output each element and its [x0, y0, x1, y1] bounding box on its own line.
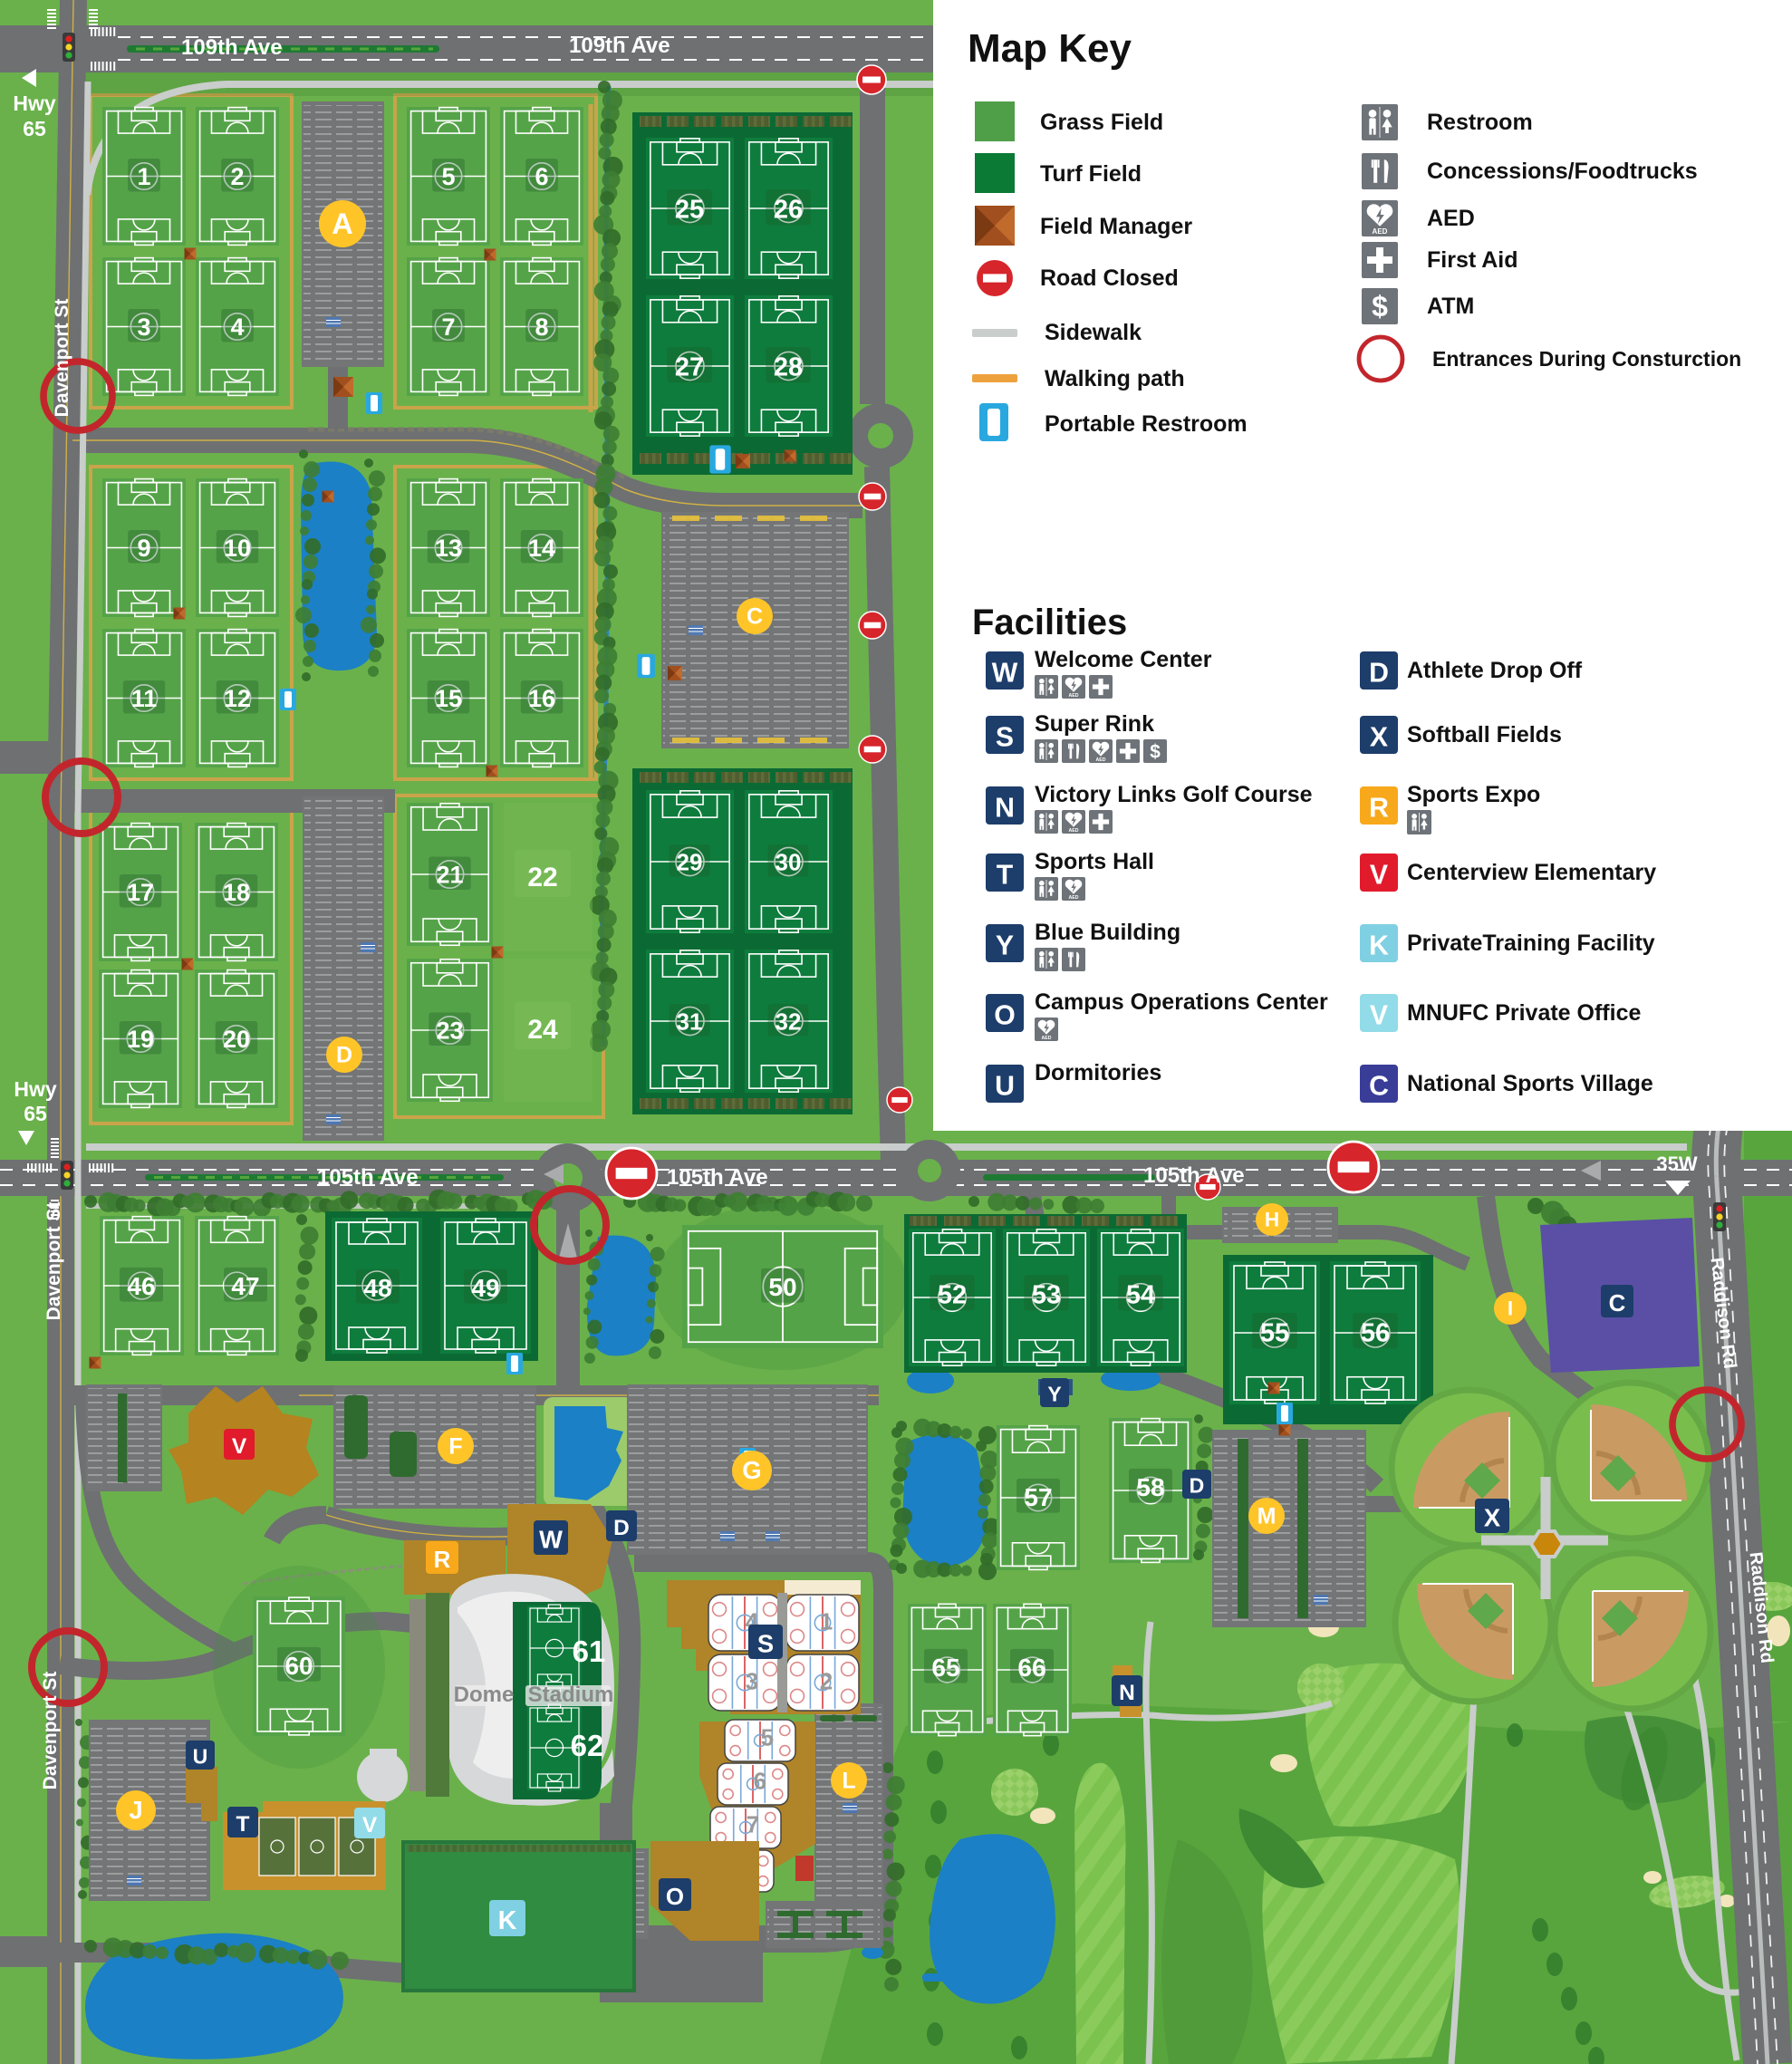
svg-text:F: F — [448, 1433, 462, 1459]
svg-text:D: D — [336, 1042, 352, 1067]
svg-text:Stadium: Stadium — [528, 1683, 614, 1707]
svg-text:Athlete Drop Off: Athlete Drop Off — [1407, 658, 1583, 683]
svg-text:Welcome Center: Welcome Center — [1035, 647, 1212, 672]
svg-text:17: 17 — [127, 879, 154, 906]
svg-text:AED: AED — [1069, 693, 1079, 699]
svg-text:105th Ave: 105th Ave — [317, 1165, 419, 1190]
svg-text:26: 26 — [774, 195, 803, 224]
svg-text:Blue Building: Blue Building — [1035, 920, 1180, 945]
svg-text:35W: 35W — [1656, 1153, 1697, 1175]
svg-text:22: 22 — [527, 863, 557, 892]
svg-text:Facilities: Facilities — [972, 603, 1127, 642]
svg-text:A: A — [332, 207, 352, 240]
svg-text:10: 10 — [224, 535, 251, 562]
svg-text:109th Ave: 109th Ave — [569, 34, 670, 58]
svg-text:Sports Expo: Sports Expo — [1407, 782, 1540, 807]
svg-text:W: W — [539, 1525, 563, 1553]
svg-text:Grass Field: Grass Field — [1040, 110, 1163, 135]
svg-text:53: 53 — [1032, 1280, 1061, 1309]
svg-text:27: 27 — [675, 352, 704, 381]
svg-text:S: S — [996, 723, 1014, 753]
svg-text:D: D — [1369, 659, 1389, 689]
svg-text:Hwy: Hwy — [14, 1077, 57, 1101]
svg-text:N: N — [995, 794, 1015, 824]
svg-text:X: X — [1484, 1503, 1501, 1531]
svg-text:105th Ave: 105th Ave — [1143, 1163, 1245, 1188]
svg-text:66: 66 — [1017, 1654, 1045, 1682]
svg-text:R: R — [434, 1548, 451, 1573]
svg-text:Y: Y — [996, 931, 1014, 961]
svg-text:65: 65 — [24, 1102, 47, 1125]
svg-text:109th Ave: 109th Ave — [181, 35, 283, 60]
svg-text:56: 56 — [1361, 1318, 1390, 1347]
svg-text:Softball Fields: Softball Fields — [1407, 722, 1562, 747]
svg-text:30: 30 — [776, 848, 802, 875]
svg-text:32: 32 — [776, 1008, 802, 1035]
svg-text:8: 8 — [535, 313, 548, 341]
svg-text:W: W — [992, 659, 1018, 689]
svg-text:First Aid: First Aid — [1427, 247, 1517, 273]
svg-text:2: 2 — [820, 1667, 833, 1694]
svg-text:Centerview Elementary: Centerview Elementary — [1407, 860, 1656, 885]
svg-text:R: R — [1369, 794, 1389, 824]
svg-text:3: 3 — [137, 313, 150, 341]
svg-text:9: 9 — [137, 535, 150, 562]
svg-text:Road Closed: Road Closed — [1040, 265, 1179, 291]
svg-text:60: 60 — [284, 1652, 313, 1680]
svg-text:Dome: Dome — [454, 1683, 515, 1707]
svg-text:31: 31 — [677, 1008, 703, 1035]
svg-text:105th Ave: 105th Ave — [667, 1165, 768, 1190]
svg-text:D: D — [1190, 1474, 1205, 1498]
svg-text:J: J — [129, 1796, 142, 1824]
svg-text:V: V — [232, 1434, 247, 1459]
svg-text:23: 23 — [436, 1018, 463, 1045]
svg-text:6: 6 — [535, 163, 548, 190]
svg-text:V: V — [1370, 1001, 1388, 1031]
svg-text:12: 12 — [224, 685, 251, 712]
svg-text:18: 18 — [223, 879, 250, 906]
svg-text:4: 4 — [230, 313, 244, 341]
svg-text:1: 1 — [137, 163, 150, 190]
svg-text:48: 48 — [363, 1274, 391, 1302]
svg-text:50: 50 — [768, 1273, 796, 1301]
svg-text:Entrances During Consturction: Entrances During Consturction — [1432, 347, 1741, 371]
svg-text:PrivateTraining Facility: PrivateTraining Facility — [1407, 931, 1655, 956]
svg-text:Turf Field: Turf Field — [1040, 161, 1142, 187]
svg-text:X: X — [1370, 723, 1388, 753]
svg-text:7: 7 — [441, 313, 455, 341]
svg-text:16: 16 — [528, 685, 555, 712]
svg-text:Restroom: Restroom — [1427, 110, 1533, 135]
svg-text:G: G — [742, 1456, 761, 1484]
svg-text:20: 20 — [223, 1026, 250, 1053]
svg-text:65: 65 — [931, 1654, 959, 1682]
svg-text:V: V — [1370, 861, 1388, 891]
svg-text:ATM: ATM — [1427, 294, 1474, 319]
svg-text:58: 58 — [1136, 1473, 1164, 1501]
svg-text:Hwy: Hwy — [13, 92, 56, 115]
svg-text:7: 7 — [747, 1811, 759, 1838]
svg-text:AED: AED — [1069, 895, 1079, 901]
svg-text:6: 6 — [754, 1768, 766, 1795]
svg-text:T: T — [236, 1812, 250, 1837]
svg-text:19: 19 — [127, 1026, 154, 1053]
svg-text:21: 21 — [436, 862, 463, 889]
svg-text:National Sports Village: National Sports Village — [1407, 1071, 1653, 1096]
svg-text:M: M — [1257, 1503, 1277, 1529]
svg-text:52: 52 — [938, 1280, 967, 1309]
svg-text:AED: AED — [1096, 757, 1106, 763]
svg-text:O: O — [666, 1885, 684, 1910]
svg-text:Super Rink: Super Rink — [1035, 711, 1154, 737]
svg-text:K: K — [498, 1906, 517, 1935]
svg-text:Dormitories: Dormitories — [1035, 1060, 1161, 1085]
svg-text:61: 61 — [573, 1635, 606, 1668]
svg-text:Field Manager: Field Manager — [1040, 214, 1192, 239]
svg-text:62: 62 — [571, 1729, 604, 1762]
svg-text:C: C — [1369, 1072, 1389, 1102]
svg-text:AED: AED — [1373, 227, 1388, 236]
svg-text:5: 5 — [761, 1724, 774, 1751]
svg-text:O: O — [994, 1001, 1016, 1031]
svg-text:$: $ — [1150, 741, 1161, 762]
svg-text:Concessions/Foodtrucks: Concessions/Foodtrucks — [1427, 159, 1698, 184]
svg-text:55: 55 — [1260, 1318, 1289, 1347]
svg-text:2: 2 — [230, 163, 244, 190]
svg-text:AED: AED — [1069, 828, 1079, 834]
svg-text:D: D — [613, 1516, 630, 1540]
svg-text:14: 14 — [528, 535, 555, 562]
svg-text:5: 5 — [441, 163, 455, 190]
svg-text:C: C — [747, 603, 763, 629]
svg-text:$: $ — [1372, 290, 1388, 323]
svg-text:Sports Hall: Sports Hall — [1035, 849, 1154, 874]
svg-text:C: C — [1609, 1291, 1626, 1317]
svg-text:N: N — [1119, 1681, 1135, 1705]
svg-text:25: 25 — [675, 195, 704, 224]
svg-text:46: 46 — [127, 1272, 155, 1300]
svg-text:15: 15 — [435, 685, 462, 712]
svg-text:24: 24 — [527, 1015, 558, 1045]
svg-text:AED: AED — [1427, 206, 1475, 231]
svg-text:65: 65 — [23, 117, 46, 140]
svg-text:Walking path: Walking path — [1045, 366, 1185, 391]
svg-text:1: 1 — [820, 1607, 833, 1635]
svg-text:V: V — [362, 1813, 378, 1837]
svg-text:Portable Restroom: Portable Restroom — [1045, 411, 1248, 437]
svg-text:28: 28 — [774, 352, 803, 381]
svg-text:Victory Links Golf Course: Victory Links Golf Course — [1035, 782, 1313, 807]
svg-text:Davenport St: Davenport St — [52, 299, 72, 418]
svg-text:Davenport St: Davenport St — [43, 1202, 64, 1321]
svg-text:Davenport St: Davenport St — [40, 1672, 61, 1790]
svg-text:47: 47 — [231, 1272, 259, 1300]
svg-text:3: 3 — [746, 1667, 758, 1694]
svg-text:I: I — [1508, 1297, 1513, 1320]
svg-text:S: S — [757, 1629, 774, 1657]
svg-text:U: U — [995, 1072, 1015, 1102]
svg-text:49: 49 — [471, 1274, 499, 1302]
svg-text:Campus Operations Center: Campus Operations Center — [1035, 989, 1328, 1015]
svg-text:U: U — [193, 1745, 208, 1769]
svg-text:13: 13 — [435, 535, 462, 562]
svg-text:AED: AED — [1042, 1036, 1052, 1041]
svg-text:11: 11 — [131, 685, 158, 712]
svg-text:54: 54 — [1126, 1280, 1155, 1309]
svg-text:T: T — [997, 861, 1014, 891]
svg-text:MNUFC Private Office: MNUFC Private Office — [1407, 1000, 1641, 1026]
svg-text:Sidewalk: Sidewalk — [1045, 320, 1142, 345]
svg-text:Y: Y — [1047, 1383, 1061, 1406]
svg-text:K: K — [1369, 931, 1389, 961]
svg-text:Map Key: Map Key — [968, 26, 1132, 71]
svg-text:L: L — [842, 1768, 855, 1793]
svg-text:29: 29 — [677, 848, 703, 875]
svg-text:H: H — [1265, 1209, 1279, 1231]
svg-text:57: 57 — [1024, 1483, 1052, 1511]
